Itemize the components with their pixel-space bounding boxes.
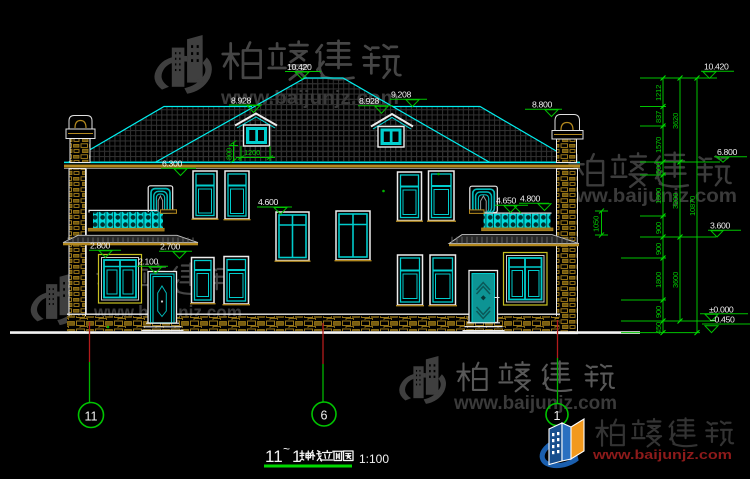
svg-text:10870: 10870	[688, 196, 697, 216]
svg-text:8.928: 8.928	[359, 96, 380, 106]
svg-text:4.600: 4.600	[258, 197, 279, 207]
svg-text:3200: 3200	[671, 193, 680, 209]
svg-text:6.800: 6.800	[717, 147, 738, 157]
svg-text:800: 800	[225, 148, 234, 160]
svg-text:1200: 1200	[244, 148, 260, 157]
svg-text:www.baijunjz.com: www.baijunjz.com	[592, 447, 732, 462]
svg-text:www.baijunjz.com: www.baijunjz.com	[559, 186, 737, 207]
svg-text:1:100: 1:100	[359, 452, 389, 466]
svg-text:8.800: 8.800	[532, 100, 553, 110]
svg-text:900: 900	[654, 243, 663, 255]
svg-text:2.100: 2.100	[138, 257, 159, 267]
svg-text:3620: 3620	[671, 113, 680, 129]
svg-text:900: 900	[654, 222, 663, 234]
svg-text:1: 1	[554, 409, 561, 423]
svg-text:4.800: 4.800	[520, 194, 541, 204]
svg-text:www.baijunjz.com: www.baijunjz.com	[453, 393, 617, 414]
svg-text:1: 1	[292, 447, 301, 466]
svg-text:450: 450	[654, 322, 663, 334]
svg-text:1800: 1800	[654, 188, 663, 204]
svg-text:6.300: 6.300	[162, 159, 183, 169]
svg-text:3600: 3600	[671, 272, 680, 288]
svg-text:11: 11	[85, 410, 98, 424]
svg-text:900: 900	[654, 306, 663, 318]
svg-text:1800: 1800	[654, 272, 663, 288]
svg-text:837: 837	[654, 111, 663, 123]
svg-text:±0.000: ±0.000	[709, 305, 734, 315]
svg-text:1570: 1570	[654, 137, 663, 153]
svg-text:1212: 1212	[654, 85, 663, 101]
svg-text:6: 6	[321, 409, 328, 423]
svg-text:10.420: 10.420	[704, 62, 729, 72]
svg-text:~: ~	[283, 442, 290, 456]
svg-text:1050: 1050	[592, 216, 601, 232]
svg-text:8.928: 8.928	[231, 96, 252, 106]
svg-text:3.600: 3.600	[710, 221, 731, 231]
svg-text:10.420: 10.420	[287, 62, 312, 72]
svg-text:500: 500	[654, 162, 663, 174]
svg-text:2.800: 2.800	[90, 241, 111, 251]
svg-text:11: 11	[265, 447, 283, 466]
svg-text:9.208: 9.208	[391, 90, 412, 100]
svg-text:4.650: 4.650	[496, 196, 517, 206]
svg-text:2.700: 2.700	[160, 242, 181, 252]
svg-text:–0.450: –0.450	[710, 315, 735, 325]
